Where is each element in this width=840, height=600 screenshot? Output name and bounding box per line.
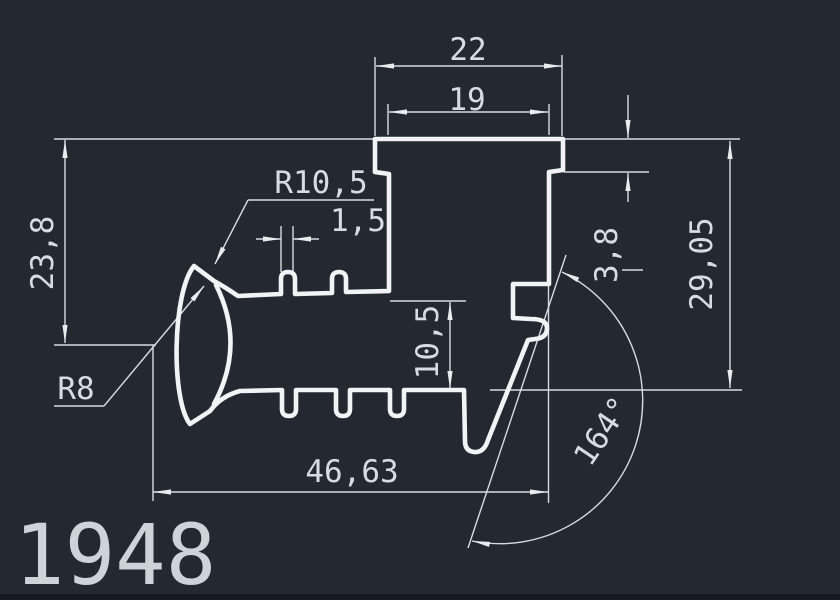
dim-label-1-5: 1,5 [330,203,386,239]
dim-label-r10-5: R10,5 [274,165,367,201]
dim-label-29-05: 29,05 [684,217,720,310]
hook-inner-arc [214,285,231,404]
leader-r10-5 [215,200,248,264]
angle-extension-line [468,255,566,548]
cad-drawing: 22 19 R10,5 1,5 23,8 R8 10,5 3,8 29,05 4… [0,0,840,600]
dim-label-10-5: 10,5 [410,305,446,380]
dim-label-3-8: 3,8 [589,227,625,283]
leader-r8 [104,286,204,406]
profile-geometry [177,139,563,452]
profile-outline [177,139,563,452]
dim-label-46-63: 46,63 [305,454,398,490]
dimension-texts: 22 19 R10,5 1,5 23,8 R8 10,5 3,8 29,05 4… [25,32,720,490]
dim-label-19: 19 [448,82,485,118]
bottom-edge-strip [0,594,840,600]
dim-label-22: 22 [449,32,486,68]
dim-label-23-8: 23,8 [25,216,61,291]
part-number: 1948 [14,506,216,600]
dim-label-r8: R8 [57,371,94,407]
dim-label-164: 164° [567,390,639,472]
cad-canvas[interactable]: 22 19 R10,5 1,5 23,8 R8 10,5 3,8 29,05 4… [0,0,840,600]
